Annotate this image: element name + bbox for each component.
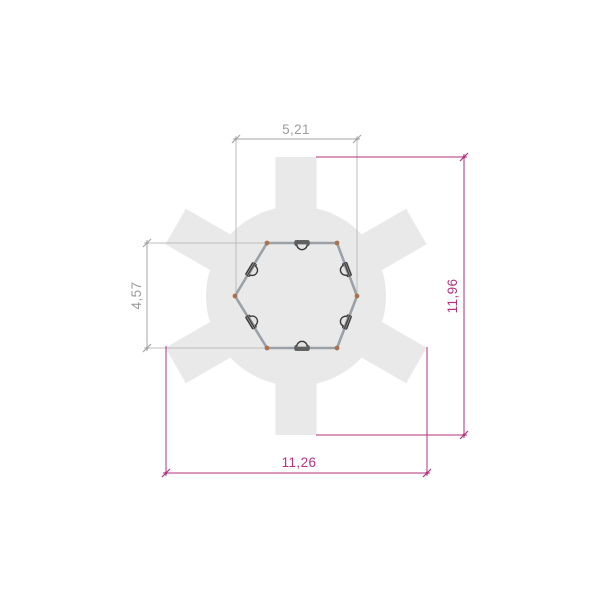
dimension-right-label: 11,96 [445, 279, 460, 314]
footprint-shape [165, 157, 426, 435]
dimension-left-label: 4,57 [129, 282, 144, 310]
plan-drawing: 5,21 4,57 11,96 11,26 [0, 0, 600, 600]
dimension-left: 4,57 [129, 239, 151, 352]
dimension-bottom-label: 11,26 [282, 455, 317, 470]
plan-drawing-canvas: 5,21 4,57 11,96 11,26 [0, 0, 600, 600]
dimension-bottom: 11,26 [162, 455, 431, 477]
dimension-right: 11,96 [445, 153, 468, 439]
dimension-top: 5,21 [232, 122, 361, 143]
dimension-top-label: 5,21 [282, 122, 310, 137]
